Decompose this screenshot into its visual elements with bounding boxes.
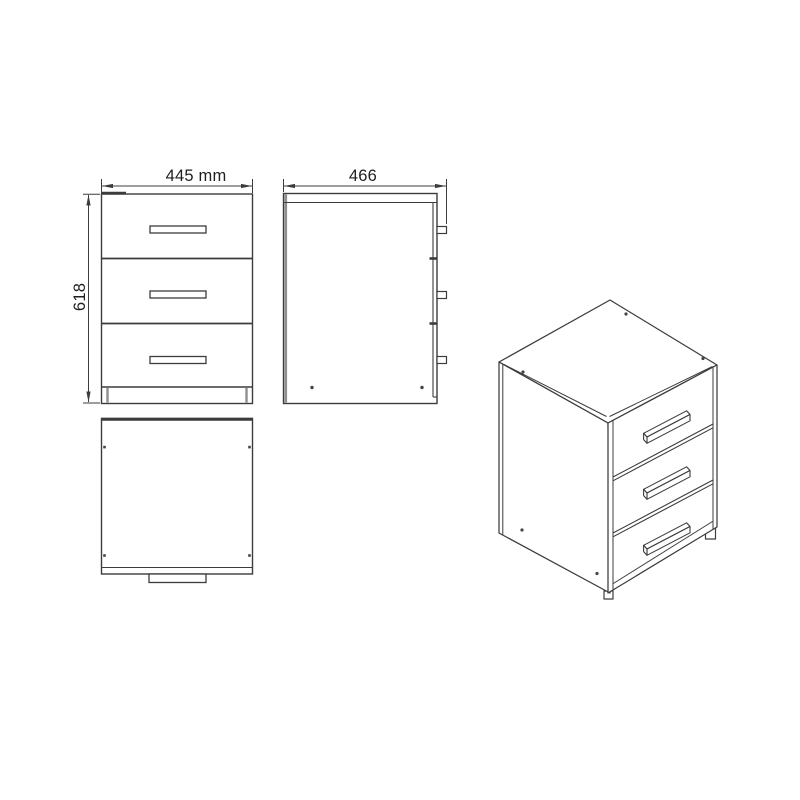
perspective-side-dot-2 bbox=[595, 572, 598, 575]
perspective-top-dot-2 bbox=[624, 312, 627, 315]
side-view bbox=[284, 194, 447, 404]
top-handle bbox=[149, 574, 206, 583]
height-arrow-top bbox=[86, 195, 90, 206]
top-screw-dot-4 bbox=[248, 554, 251, 557]
width-arrow-left bbox=[102, 184, 113, 188]
height-arrow-bottom bbox=[86, 392, 90, 403]
depth-dimension bbox=[284, 179, 447, 224]
perspective-top-dot-1 bbox=[521, 370, 524, 373]
perspective-side-dot-1 bbox=[520, 528, 523, 531]
drawer-handle-1 bbox=[150, 226, 206, 233]
side-handle-tab-1 bbox=[437, 227, 447, 234]
depth-arrow-left bbox=[284, 184, 295, 188]
side-handle-tab-2 bbox=[437, 292, 447, 299]
perspective-view bbox=[499, 300, 717, 599]
drawer-handle-3 bbox=[150, 357, 206, 364]
depth-dimension-label: 466 bbox=[349, 167, 377, 185]
front-view bbox=[101, 193, 253, 403]
side-screw-dot-1 bbox=[310, 386, 313, 389]
technical-drawing-page: 445 mm 618 466 bbox=[0, 0, 800, 800]
depth-arrow-right bbox=[435, 184, 446, 188]
perspective-top-dot-3 bbox=[701, 357, 704, 360]
drawer-handle-2 bbox=[150, 291, 206, 298]
cabinet-drawing-svg: 445 mm 618 466 bbox=[0, 0, 800, 800]
top-view bbox=[101, 419, 253, 583]
side-outline bbox=[284, 194, 438, 404]
top-screw-dot-1 bbox=[103, 446, 106, 449]
side-handle-tab-3 bbox=[437, 357, 447, 364]
width-arrow-right bbox=[241, 184, 252, 188]
top-screw-dot-3 bbox=[103, 554, 106, 557]
width-dimension-label: 445 mm bbox=[166, 167, 227, 185]
height-dimension-label: 618 bbox=[71, 283, 89, 311]
side-screw-dot-2 bbox=[420, 386, 423, 389]
top-screw-dot-2 bbox=[248, 446, 251, 449]
top-outline bbox=[102, 419, 253, 575]
